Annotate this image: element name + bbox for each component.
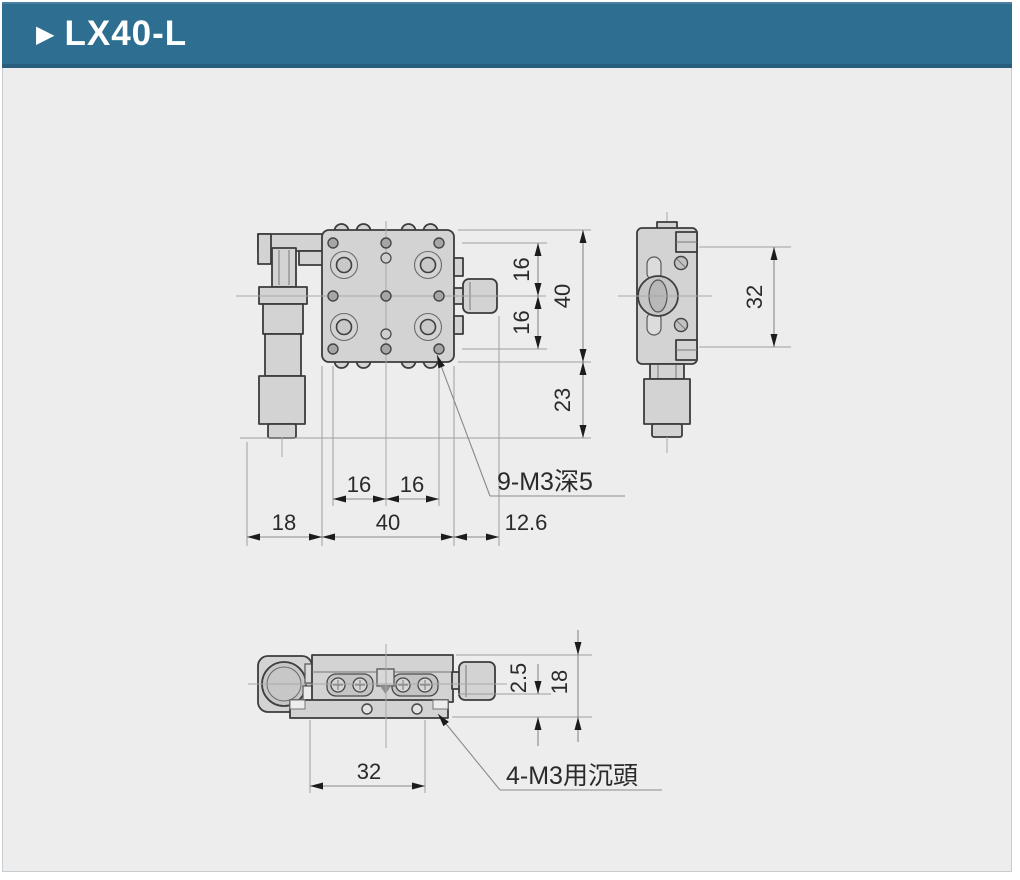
dim-bottom-hole-span: 32 — [357, 759, 381, 784]
countersunk-hole — [412, 704, 422, 714]
slot-screw-group-left — [327, 674, 373, 696]
catalog-page: ▶ LX40-L — [0, 0, 1020, 880]
annotation-m3-holes: 9-M3深5 — [497, 468, 593, 496]
slot-screw-group-right — [392, 674, 438, 696]
dim-side-hole-span: 32 — [742, 285, 767, 309]
dim-bottom-stage-height: 18 — [547, 670, 572, 694]
dim-front-col-pitch-left: 16 — [347, 472, 371, 497]
annotation-countersunk-holes: 4-M3用沉頭 — [506, 762, 638, 790]
dim-front-row-pitch-upper: 16 — [509, 257, 534, 281]
dim-front-plate-height: 40 — [550, 284, 575, 308]
dim-front-micrometer-side: 18 — [272, 510, 296, 535]
micrometer-head — [258, 234, 323, 438]
dim-front-base-drop: 23 — [550, 388, 575, 412]
countersunk-hole — [362, 704, 372, 714]
dim-front-plate-width: 40 — [376, 510, 400, 535]
side-view: 32 — [618, 212, 791, 453]
front-view: 16 16 40 23 16 16 18 40 12.6 9-M3深5 — [236, 221, 625, 546]
dim-front-row-pitch-lower: 16 — [509, 310, 534, 334]
knurled-thimble — [259, 376, 305, 424]
dim-bottom-plate-offset: 2.5 — [506, 663, 531, 694]
dim-front-knob-side: 12.6 — [505, 510, 548, 535]
bottom-view: 2.5 18 32 4-M3用沉頭 — [248, 630, 662, 793]
knurled-thimble-side — [644, 379, 690, 424]
dim-front-col-pitch-right: 16 — [400, 472, 424, 497]
technical-drawing: 16 16 40 23 16 16 18 40 12.6 9-M3深5 — [0, 0, 1020, 880]
